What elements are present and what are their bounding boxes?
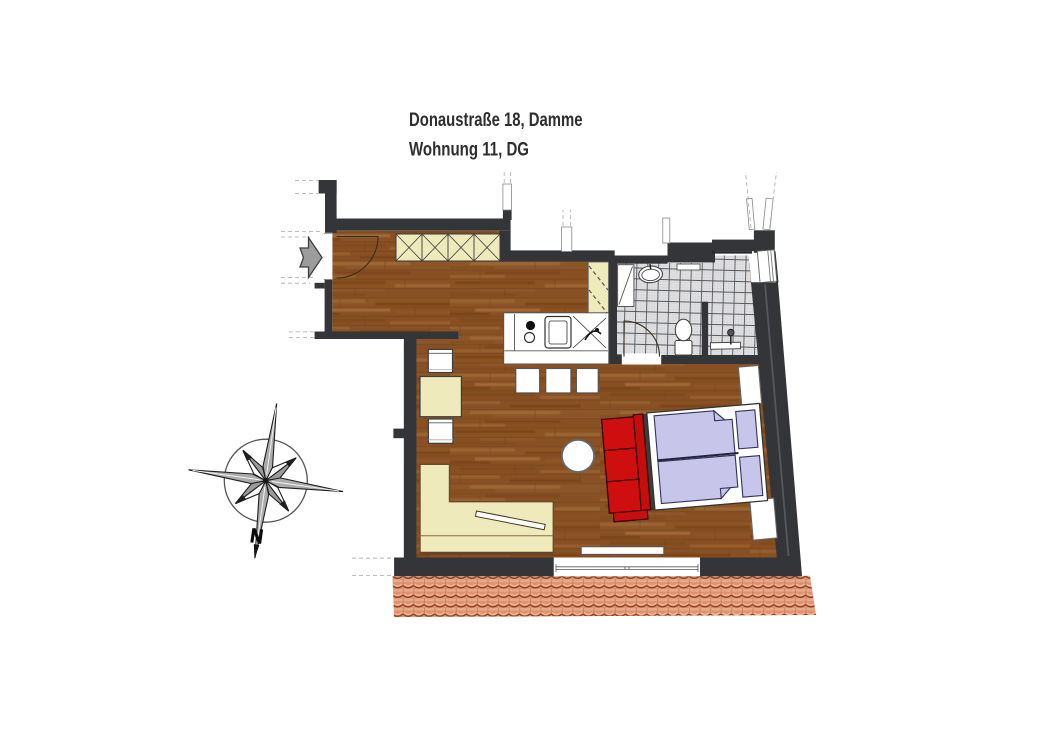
svg-text:Wohnung 11, DG: Wohnung 11, DG <box>409 139 529 160</box>
svg-text:Donaustraße 18, Damme: Donaustraße 18, Damme <box>409 110 583 131</box>
